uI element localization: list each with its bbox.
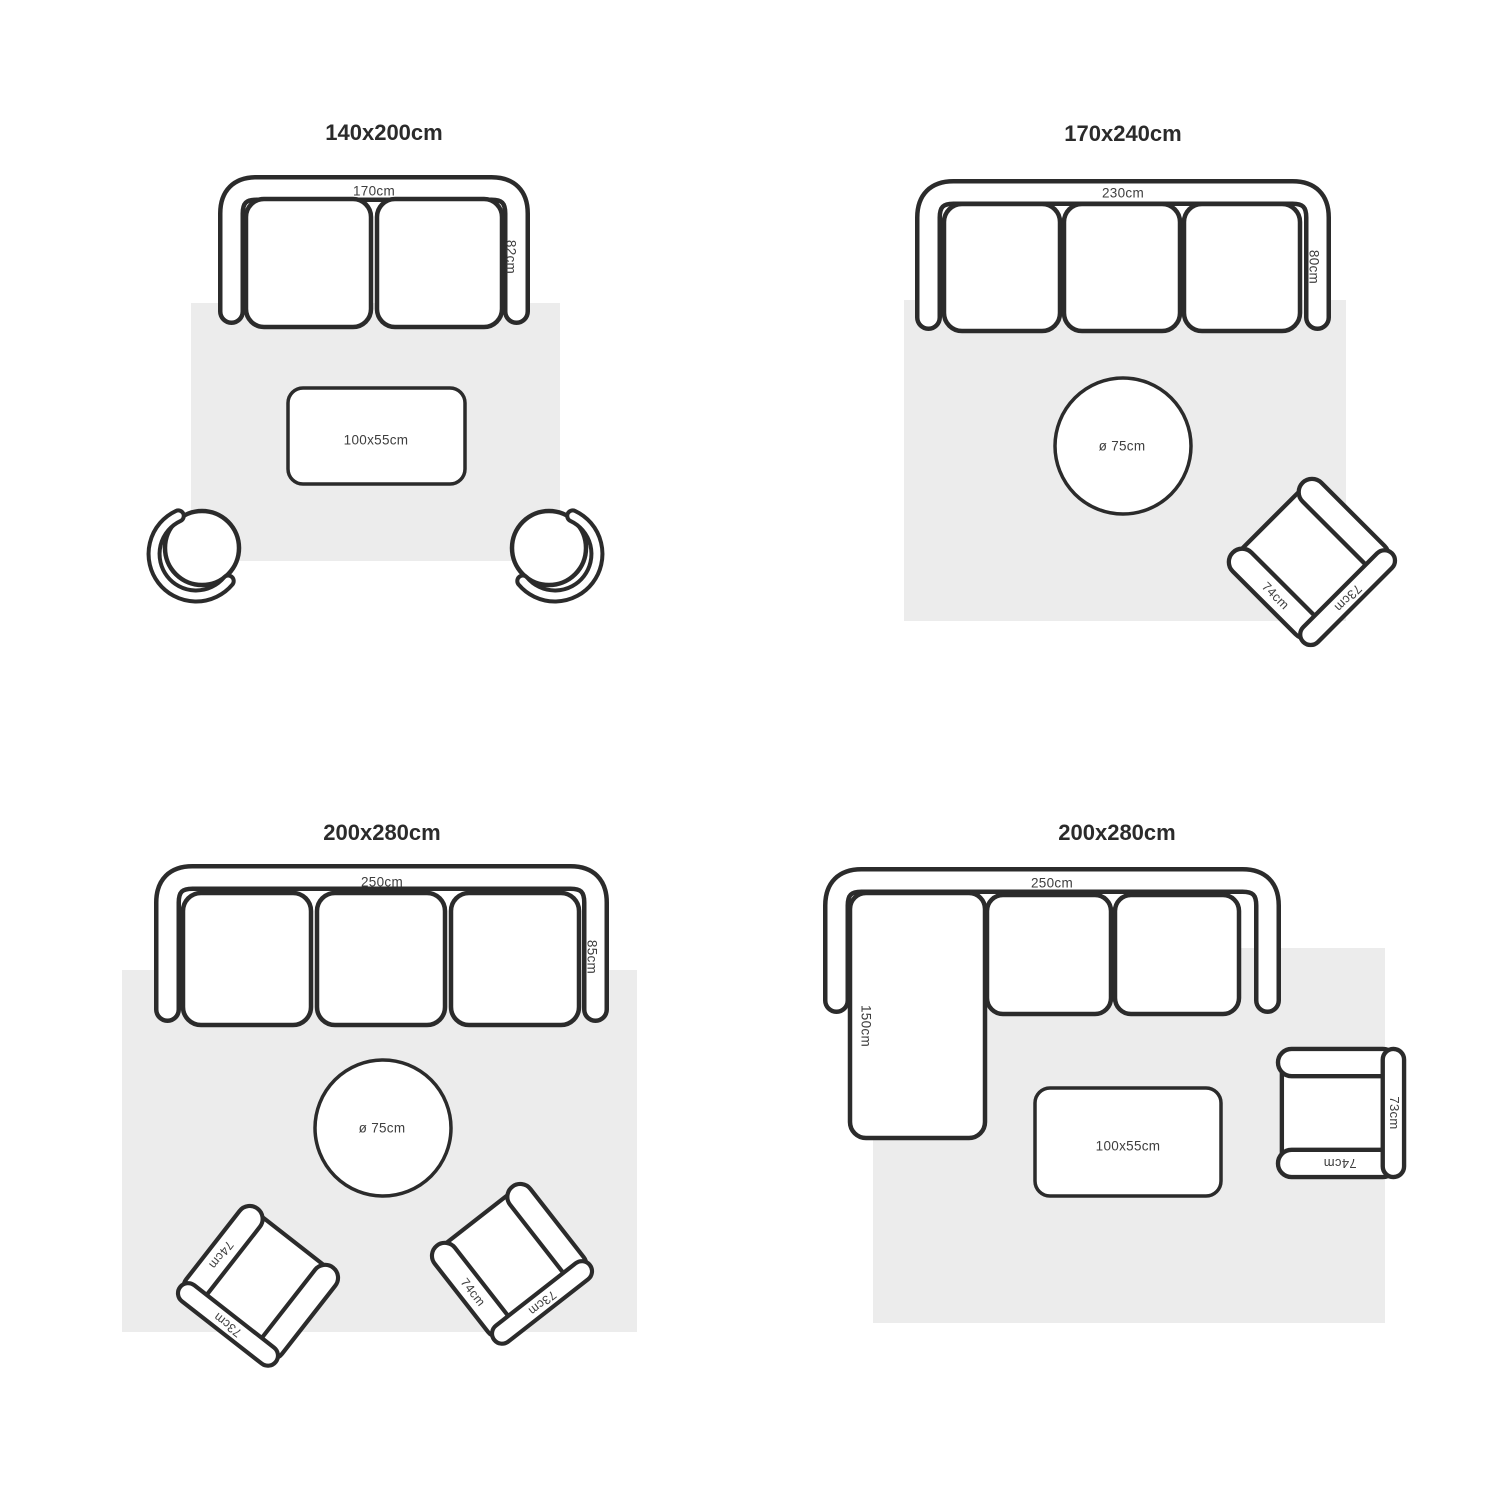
sofa-cushion (377, 199, 502, 327)
panel-title: 200x280cm (1058, 820, 1175, 845)
sofa-width-label: 250cm (1031, 876, 1073, 891)
sofa-depth-label: 80cm (1306, 250, 1321, 284)
coffee-table-round: ø 75cm (315, 1060, 451, 1196)
armchair-right-arm (1278, 1049, 1396, 1076)
panel-title: 200x280cm (323, 820, 440, 845)
sofa-3-seat: 250cm 85cm (168, 875, 600, 1025)
sofa-3-seat: 230cm 80cm (929, 186, 1322, 331)
sofa-width-label: 170cm (353, 184, 395, 199)
coffee-table-label: 100x55cm (344, 433, 409, 448)
rug-size-guide-diagram: 140x200cm 170cm 82cm 100x55cm (0, 0, 1500, 1500)
sofa-2-seat: 170cm 82cm (232, 184, 519, 327)
sofa-cushion (987, 895, 1111, 1014)
coffee-table-label: 100x55cm (1096, 1139, 1161, 1154)
sofa-depth-label: 82cm (503, 240, 518, 274)
sofa-cushion (451, 893, 579, 1025)
sofa-depth-label: 85cm (584, 940, 599, 974)
armchair: 74cm 73cm (1278, 1049, 1404, 1177)
sofa-cushion (246, 199, 371, 327)
sofa-cushion (183, 893, 311, 1025)
sofa-cushion (944, 204, 1060, 331)
sofa-cushion (1184, 204, 1300, 331)
coffee-table-rect: 100x55cm (288, 388, 465, 484)
armchair-arm-label: 74cm (1323, 1156, 1356, 1171)
panel-title: 140x200cm (325, 120, 442, 145)
sofa-width-label: 230cm (1102, 186, 1144, 201)
sofa-width-label: 250cm (361, 875, 403, 890)
coffee-table-label: ø 75cm (1099, 439, 1146, 454)
coffee-table-label: ø 75cm (359, 1121, 406, 1136)
sofa-cushion (1115, 895, 1239, 1014)
panel-140x200: 140x200cm 170cm 82cm 100x55cm (154, 120, 597, 596)
panel-200x280-sofa: 200x280cm 250cm 85cm ø 75cm 74cm 73cm (122, 820, 637, 1370)
swivel-chair-left (154, 511, 239, 596)
panel-title: 170x240cm (1064, 121, 1181, 146)
swivel-chair-right (512, 511, 597, 596)
chaise-length-label: 150cm (858, 1005, 873, 1047)
diagram-canvas: 140x200cm 170cm 82cm 100x55cm (0, 0, 1500, 1500)
panel-170x240: 170x240cm 230cm 80cm ø 75cm 74cm 73cm (904, 121, 1399, 649)
sofa-cushion (1064, 204, 1180, 331)
sofa-cushion (317, 893, 445, 1025)
armchair-back-label: 73cm (1387, 1096, 1402, 1129)
coffee-table-rect: 100x55cm (1035, 1088, 1221, 1196)
coffee-table-round: ø 75cm (1055, 378, 1191, 514)
panel-200x280-sectional: 200x280cm 250cm 150cm 100x55cm 74cm 73cm (837, 820, 1405, 1323)
